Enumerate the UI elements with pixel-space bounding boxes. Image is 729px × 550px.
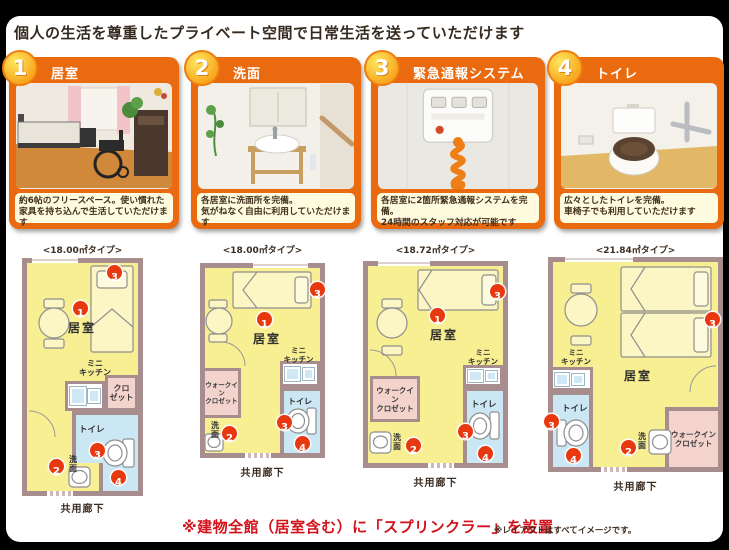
table-icon bbox=[565, 284, 597, 345]
corridor-label: 共用廊下 bbox=[548, 478, 723, 493]
toilet-label: トイレ bbox=[288, 396, 312, 407]
feature-card-washbasin: 2 洗面 各居室 bbox=[191, 57, 361, 229]
towel bbox=[310, 154, 316, 170]
emergency-button bbox=[436, 126, 444, 134]
toilet-label: トイレ bbox=[562, 402, 588, 414]
toilet-tank bbox=[613, 108, 655, 133]
plan2-type-label: <18.00㎡タイプ> bbox=[200, 243, 325, 256]
toilet-icon bbox=[469, 412, 499, 439]
floor-plan-1: クロゼット 居室 bbox=[22, 258, 143, 496]
badge-3: 3 bbox=[544, 414, 559, 429]
feature-number-badge: 1 bbox=[2, 50, 38, 86]
wash-label: 洗面 bbox=[69, 455, 79, 473]
plan1-type-label: <18.00㎡タイプ> bbox=[22, 243, 143, 256]
washbasin-photo bbox=[198, 83, 354, 189]
floor-plan-2: ウォークインクロゼット 居室 bbox=[200, 263, 325, 458]
room-label: 居室 bbox=[416, 326, 472, 343]
feature-number: 4 bbox=[558, 56, 573, 80]
flowers bbox=[154, 88, 162, 96]
badge-1: 1 bbox=[73, 301, 88, 316]
bed-icon bbox=[233, 272, 311, 308]
toilet-icon bbox=[557, 420, 588, 446]
plan1-furniture bbox=[27, 263, 138, 491]
feature-title: 居室 bbox=[51, 63, 79, 82]
floor-plan-4: ウォークインクロゼット bbox=[548, 257, 723, 472]
badge-1: 1 bbox=[257, 312, 272, 327]
badge-3: 3 bbox=[90, 443, 105, 458]
table-icon bbox=[206, 300, 232, 342]
room-label: 居室 bbox=[55, 319, 109, 336]
wash-label: 洗面 bbox=[211, 421, 221, 439]
toilet-label: トイレ bbox=[79, 423, 105, 435]
brochure-page: 個人の生活を尊重したプライベート空間で日常生活を送っていただけます 1 居室 bbox=[6, 16, 723, 542]
corridor-label: 共用廊下 bbox=[22, 500, 143, 515]
door-arc-icon bbox=[29, 411, 55, 437]
feature-card-emergency: 3 緊急通報システム 各居室に2箇所緊急通報システムを完備。 24時間のスタッフ… bbox=[371, 57, 545, 229]
badge-2: 2 bbox=[222, 426, 237, 441]
entrance-icon bbox=[428, 463, 454, 468]
wash-label: 洗面 bbox=[638, 432, 648, 450]
feature-number: 3 bbox=[375, 56, 390, 80]
room-label: 居室 bbox=[608, 367, 668, 384]
corridor-label: 共用廊下 bbox=[363, 474, 508, 489]
washbasin-icon bbox=[649, 430, 671, 454]
device-button bbox=[432, 97, 446, 107]
table-icon bbox=[377, 299, 407, 355]
feature-title: トイレ bbox=[596, 63, 638, 82]
badge-2: 2 bbox=[49, 459, 64, 474]
paper-holder bbox=[579, 136, 593, 144]
entrance-icon bbox=[47, 491, 73, 496]
coiled-cord bbox=[453, 142, 463, 186]
window bbox=[74, 88, 124, 130]
kitchen-label: ミニ キッチン bbox=[67, 359, 123, 377]
badge-1: 1 bbox=[430, 308, 445, 323]
badge-3: 3 bbox=[458, 424, 473, 439]
feature-caption: 各居室に2箇所緊急通報システムを完備。 24時間のスタッフ対応が可能です bbox=[377, 193, 539, 223]
floor-plan-3: ウォークインクロゼット 居室 bbox=[363, 261, 508, 468]
entrance-icon bbox=[601, 467, 627, 472]
device-button bbox=[452, 97, 466, 107]
kitchen-label: ミニ キッチン bbox=[555, 348, 597, 366]
badge-2: 2 bbox=[406, 438, 421, 453]
living-room-photo bbox=[16, 83, 172, 189]
feature-caption: 約6帖のフリースペース。使い慣れた 家具を持ち込んで生活していただけます bbox=[15, 193, 173, 223]
door-arc-icon bbox=[690, 366, 716, 392]
emergency-system-photo bbox=[378, 83, 538, 189]
toilet-label: トイレ bbox=[471, 398, 497, 410]
corridor-label: 共用廊下 bbox=[200, 464, 325, 479]
bedside-cabinet bbox=[80, 128, 96, 147]
layout-disclaimer: ※レイアウトはすべてイメージです。 bbox=[494, 524, 636, 536]
feature-number-badge: 3 bbox=[364, 50, 400, 86]
kitchen-label: ミニ キッチン bbox=[463, 348, 503, 366]
badge-4: 4 bbox=[566, 448, 581, 463]
feature-number-badge: 2 bbox=[184, 50, 220, 86]
feature-title: 緊急通報システム bbox=[413, 63, 525, 82]
kitchen-label: ミニ キッチン bbox=[277, 346, 320, 364]
badge-3: 3 bbox=[705, 312, 720, 327]
feature-number: 2 bbox=[195, 56, 210, 80]
plan3-type-label: <18.72㎡タイプ> bbox=[363, 243, 508, 256]
washbasin-icon bbox=[370, 432, 391, 453]
feature-caption: 各居室に洗面所を完備。 気がねなく自由に利用していただけます bbox=[197, 193, 355, 223]
badge-2: 2 bbox=[621, 440, 636, 455]
wash-label: 洗面 bbox=[393, 433, 403, 451]
feature-card-toilet: 4 トイレ 広々としたトイレを完備。 車椅子でも利用していただけます bbox=[554, 57, 724, 229]
badge-4: 4 bbox=[111, 470, 126, 485]
toilet-icon bbox=[103, 439, 134, 467]
bed-icon bbox=[621, 267, 711, 311]
feature-caption: 広々としたトイレを完備。 車椅子でも利用していただけます bbox=[560, 193, 718, 223]
badge-4: 4 bbox=[295, 436, 310, 451]
plan4-type-label: <21.84㎡タイプ> bbox=[548, 243, 723, 256]
badge-3: 3 bbox=[277, 415, 292, 430]
room-label: 居室 bbox=[240, 330, 294, 347]
bed-icon bbox=[418, 270, 498, 310]
badge-3: 3 bbox=[310, 282, 325, 297]
badge-4: 4 bbox=[478, 446, 493, 461]
entrance-icon bbox=[245, 453, 271, 458]
device-button bbox=[472, 97, 486, 107]
feature-title: 洗面 bbox=[233, 63, 261, 82]
page-title: 個人の生活を尊重したプライベート空間で日常生活を送っていただけます bbox=[14, 22, 525, 43]
bed-icon bbox=[621, 313, 711, 357]
page-background: 個人の生活を尊重したプライベート空間で日常生活を送っていただけます 1 居室 bbox=[0, 0, 729, 550]
feature-card-living-room: 1 居室 bbox=[9, 57, 179, 229]
toilet-photo bbox=[561, 83, 717, 189]
badge-3: 3 bbox=[490, 284, 505, 299]
feature-number: 1 bbox=[13, 56, 28, 80]
badge-3: 3 bbox=[107, 265, 122, 280]
feature-number-badge: 4 bbox=[547, 50, 583, 86]
pull-handle bbox=[451, 181, 465, 189]
